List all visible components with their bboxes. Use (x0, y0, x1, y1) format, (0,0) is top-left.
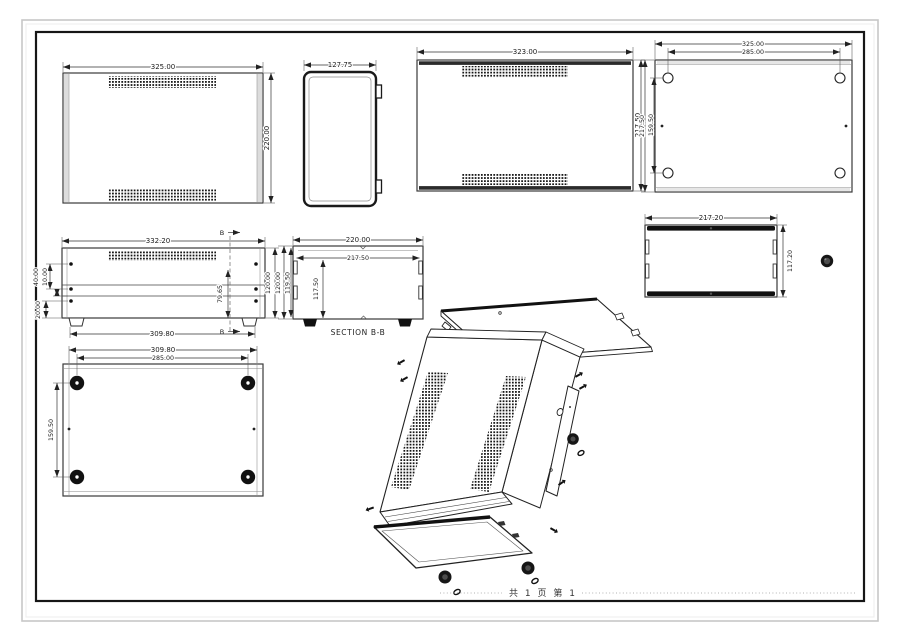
hinge-tab-top (376, 85, 382, 98)
foot-right (242, 318, 257, 326)
offset-40-label: 40.00 (33, 268, 40, 286)
mount-hole (663, 168, 673, 178)
section-outer-width-label: 220.00 (346, 236, 371, 244)
top-bar (419, 61, 631, 65)
mounting-hole-view: 325.00 285.00 217.50 159.50 (639, 40, 852, 192)
top-view: 323.00 217.50 (417, 47, 645, 191)
mount-hole (835, 168, 845, 178)
panel-bottom-width-label: 309.80 (150, 330, 175, 338)
front-width-label: 325.00 (151, 63, 176, 71)
panel-top-width-label: 332.20 (146, 237, 171, 245)
right-rail (257, 74, 262, 202)
top-width-label: 323.00 (513, 48, 538, 56)
section-height-inner-label: 119.50 (285, 272, 292, 294)
engineering-drawing-sheet: 325.00 220.00 127.75 323.00 217.50 (0, 0, 900, 636)
vent-strip-top (108, 76, 216, 88)
vent-strip-bottom (462, 173, 568, 185)
mount-outer-width-label: 325.00 (742, 41, 764, 48)
bottom-width-label: 309.80 (151, 346, 176, 354)
rear-height-label: 117.20 (787, 250, 794, 272)
offset-20-label: 20.00 (35, 301, 42, 319)
hinge-tab-bottom (376, 180, 382, 193)
section-inner-width-label: 217.50 (347, 255, 369, 262)
mount-outer-height-label: 217.50 (639, 115, 646, 137)
bottom-bar (419, 186, 631, 190)
section-title: SECTION B-B (331, 328, 386, 337)
vent-strip (108, 251, 216, 261)
mount-hole-y-label: 159.50 (648, 114, 655, 136)
mount-hole (663, 73, 673, 83)
panel-height-label: 120.00 (265, 272, 272, 294)
foot-left (69, 318, 84, 326)
front-height-label: 220.00 (263, 126, 271, 151)
offset-10-label: 10.00 (42, 268, 49, 286)
side-width-label: 127.75 (328, 61, 353, 69)
bottom-view: 309.80 285.00 159.50 (48, 346, 263, 496)
foot-left (303, 319, 317, 327)
vent-strip-top (462, 66, 568, 78)
section-inner-height-label: 117.50 (313, 278, 320, 300)
rubber-foot-detail (821, 255, 833, 267)
page-footer-text: 共 1 页 第 1 (509, 587, 577, 599)
feet-spacing-x-label: 285.00 (152, 355, 174, 362)
front-view: 325.00 220.00 (63, 62, 275, 203)
svg-text:B: B (220, 229, 224, 237)
foot-right (398, 319, 412, 327)
mount-hole-x-label: 285.00 (742, 49, 764, 56)
mount-hole (835, 73, 845, 83)
left-rail (64, 74, 69, 202)
side-view: 127.75 (304, 60, 382, 206)
feet-spacing-y-label: 159.50 (48, 419, 55, 441)
dim-79-label: 79.65 (217, 285, 224, 303)
svg-text:B: B (220, 328, 224, 336)
rear-width-label: 217.20 (699, 214, 724, 222)
section-height-label: 120.00 (275, 272, 282, 294)
vent-strip-bottom (108, 189, 216, 201)
